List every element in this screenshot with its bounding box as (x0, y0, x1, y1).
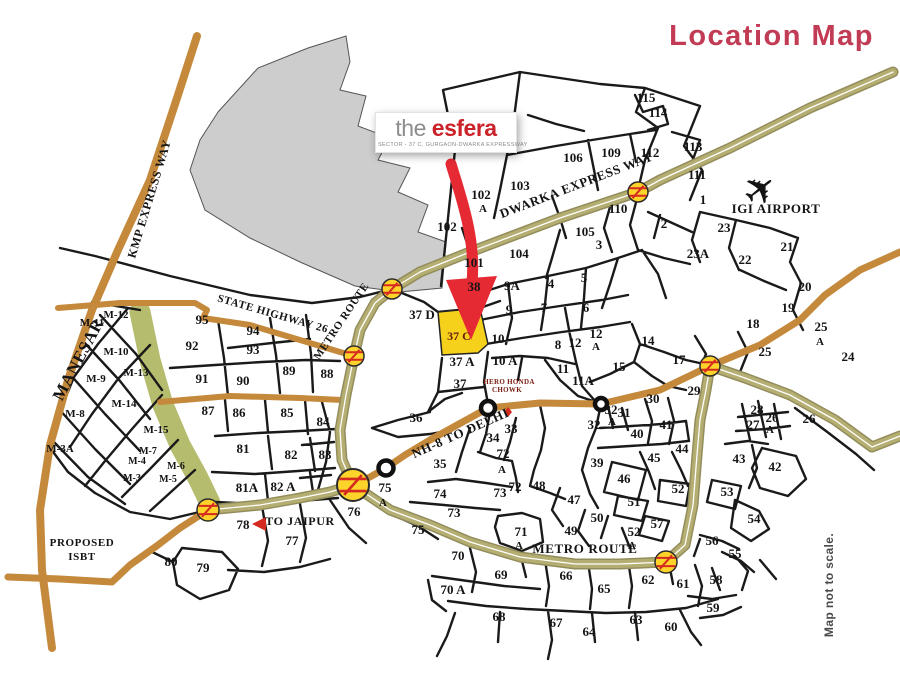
sector-label: 74 (434, 486, 448, 501)
sector-label: 38 (468, 279, 482, 294)
sector-label: 59 (707, 600, 721, 615)
sector-label: A (515, 540, 523, 552)
sector-label: 18 (747, 316, 761, 331)
sector-label: 101 (464, 255, 484, 270)
sector-label: 114 (649, 105, 668, 120)
sector-label: 89 (283, 363, 297, 378)
sector-label: 111 (688, 167, 706, 182)
sector-label: 82 A (271, 479, 297, 494)
sector-label: 51 (628, 494, 641, 509)
chowk-label: HERO HONDA (483, 378, 534, 386)
location-map-canvas: ✈ KMP EXPRESS WAYDWARKA EXPRESS WAYSTATE… (0, 0, 900, 700)
sector-label: 37 A (450, 354, 476, 369)
sector-label: 64 (583, 624, 597, 639)
sector-label: 11A (572, 373, 594, 388)
logo-the: the (395, 115, 425, 141)
sector-label: M-8 (65, 408, 85, 420)
sector-label: 86 (233, 405, 247, 420)
sector-label: 43 (733, 451, 747, 466)
sector-label: 26 (803, 411, 817, 426)
sector-label: 90 (237, 373, 250, 388)
sector-label: 45 (648, 450, 662, 465)
toll-plaza-icon (337, 469, 369, 501)
sector-label: 31 (618, 405, 631, 420)
metro-station-icon (197, 499, 219, 521)
sector-label: 94 (247, 323, 261, 338)
sector-label: 112 (641, 145, 660, 160)
sector-label: 57 (651, 516, 665, 531)
sector-label: M-3 (123, 473, 141, 484)
sector-label: 61 (677, 576, 690, 591)
sector-label: 53 (721, 484, 735, 499)
sector-label: 8 (555, 337, 562, 352)
sector-label: A (592, 341, 600, 353)
sector-label: 92 (186, 338, 199, 353)
sector-label: 2 (661, 216, 668, 231)
sector-label: 9A (504, 278, 521, 293)
esfera-logo: the esfera SECTOR - 37 C, GURGAON-DWARKA… (375, 112, 517, 153)
sector-label: 87 (202, 403, 216, 418)
sector-label: 62 (642, 572, 655, 587)
road-label: PROPOSED (50, 537, 115, 549)
sector-label: 4 (548, 276, 555, 291)
sector-label: 48 (533, 478, 547, 493)
sector-label: 54 (748, 511, 762, 526)
sector-label: 46 (618, 471, 632, 486)
sector-label: 113 (684, 139, 703, 154)
sector-label: 55 (729, 546, 743, 561)
sector-label: 88 (321, 366, 335, 381)
sector-label: 56 (706, 533, 720, 548)
sector-label: 106 (563, 150, 583, 165)
sector-label: 37 D (409, 307, 435, 322)
sector-label: M-14 (111, 398, 137, 410)
sector-label: 79 (197, 560, 211, 575)
logo-brand: esfera (432, 115, 497, 141)
sector-label: 77 (286, 533, 300, 548)
sector-label: 15 (613, 359, 627, 374)
sector-label: 47 (568, 492, 582, 507)
sector-label: 75 (379, 480, 393, 495)
sector-label: 102 (437, 219, 457, 234)
sector-label: 34 (487, 430, 501, 445)
sector-label: 81 (237, 441, 250, 456)
sector-label: 72 (509, 479, 522, 494)
road-label: METRO ROUTE (532, 541, 637, 556)
sector-label: 32 (605, 402, 618, 417)
sector-label: A (766, 424, 774, 436)
sector-label: A (816, 336, 824, 348)
sector-label: 102 (471, 187, 491, 202)
sector-label: 21 (781, 239, 794, 254)
sector-label: 70 (452, 548, 465, 563)
logo-subtitle: SECTOR - 37 C, GURGAON-DWARKA EXPRESSWAY (378, 142, 514, 148)
sector-label: 109 (601, 145, 621, 160)
sector-label: 66 (560, 568, 574, 583)
sector-label: 12 (569, 335, 582, 350)
sector-label: 10 A (493, 353, 519, 368)
sector-label: 30 (647, 391, 660, 406)
road-label: IGI AIRPORT (732, 201, 821, 216)
sector-label: 28 (751, 402, 765, 417)
sector-label: 75 (412, 522, 426, 537)
sector-label: 1 (700, 192, 707, 207)
sector-label: 42 (769, 459, 782, 474)
sector-label: 29 (688, 383, 702, 398)
sector-label: 41 (660, 417, 673, 432)
sector-label: 93 (247, 342, 261, 357)
sector-label: 71 (515, 524, 528, 539)
sector-label: 27 (747, 417, 761, 432)
sector-label: 19 (782, 300, 796, 315)
sector-label: 104 (509, 246, 529, 261)
sector-label: 80 (165, 554, 178, 569)
sector-label: M-4 (128, 456, 146, 467)
sector-label: 22 (739, 252, 752, 267)
road-label: KMP EXPRESS WAY (124, 138, 173, 260)
sector-label: 72 (497, 446, 510, 461)
sector-label: 69 (495, 567, 509, 582)
metro-station-icon (628, 182, 648, 202)
sector-label: M-3A (46, 443, 74, 455)
sector-label: 67 (550, 615, 564, 630)
metro-station-icon (382, 279, 402, 299)
sector-label: 6 (583, 300, 590, 315)
sector-label: M-13 (123, 367, 149, 379)
sector-label: 70 A (441, 582, 467, 597)
sector-label: A (379, 497, 387, 509)
metro-station-icon (700, 356, 720, 376)
sector-label: 63 (630, 612, 644, 627)
scale-note: Map not to scale. (822, 533, 836, 637)
sector-label: 103 (510, 178, 530, 193)
sector-label: 52 (672, 481, 685, 496)
metro-station-icon (344, 346, 364, 366)
sector-label: M-5 (159, 474, 177, 485)
sector-label: 78 (237, 517, 251, 532)
sector-label: 84 (317, 414, 331, 429)
metro-station-icon (655, 551, 677, 573)
sector-label: 83 (319, 447, 333, 462)
sector-label: 39 (591, 455, 605, 470)
road-label: ISBT (68, 551, 96, 563)
sector-label: 105 (575, 224, 595, 239)
junction-icon (379, 461, 394, 476)
sector-label: 17 (673, 352, 687, 367)
sector-label: 44 (676, 441, 690, 456)
sector-label: 68 (493, 609, 507, 624)
sector-label: 65 (598, 581, 612, 596)
sector-label: 50 (591, 510, 604, 525)
sector-label: 49 (565, 523, 579, 538)
sector-label: A (628, 540, 636, 552)
sector-label: 10 (492, 331, 505, 346)
sector-label: M-11 (80, 317, 104, 329)
sector-label: 23 (718, 220, 732, 235)
sector-label: 110 (609, 201, 628, 216)
sector-label: 81A (236, 480, 259, 495)
sector-label: 60 (665, 619, 678, 634)
sector-label: M-6 (167, 461, 185, 472)
sector-label: 35 (434, 456, 448, 471)
sector-label: A (479, 203, 487, 215)
sector-label: 40 (631, 426, 644, 441)
gray-area (190, 36, 446, 292)
sector-label: 26 (766, 410, 780, 425)
sector-label: 9 (506, 302, 513, 317)
sector-label: M-12 (103, 309, 129, 321)
jaipur-direction-icon (252, 517, 266, 531)
page-title: Location Map (669, 20, 874, 53)
sector-label: 25 (815, 319, 829, 334)
sector-label: 5 (581, 270, 588, 285)
sector-label: 73 (448, 505, 462, 520)
sector-label: 3 (596, 237, 603, 252)
sector-label: 20 (799, 279, 812, 294)
sector-label: 52 (628, 524, 641, 539)
sector-label: A (498, 464, 506, 476)
sector-label: M-9 (86, 373, 106, 385)
sector-label: 95 (196, 312, 210, 327)
sector-label: 85 (281, 405, 295, 420)
sector-label: 33 (505, 421, 519, 436)
sector-label: 24 (842, 349, 856, 364)
sector-label: 91 (196, 371, 209, 386)
sector-label: 12 (590, 326, 603, 341)
sector-label: 14 (642, 333, 656, 348)
sector-label: 36 (410, 410, 424, 425)
sector-label: M-15 (143, 424, 169, 436)
sector-label: 32 (588, 417, 601, 432)
road-label: TO JAIPUR (265, 514, 335, 528)
sector-label: A (608, 416, 616, 428)
chowk-label: CHOWK (492, 386, 522, 394)
sector-label: 11 (557, 361, 569, 376)
highlight-label: 37 C (447, 329, 471, 343)
sector-label: 7 (541, 300, 548, 315)
sector-label: 58 (710, 572, 724, 587)
sector-label: 76 (348, 504, 362, 519)
sector-label: 25 (759, 344, 773, 359)
sector-label: 73 (494, 485, 508, 500)
sector-label: 82 (285, 447, 298, 462)
sector-label: M-10 (103, 346, 129, 358)
sector-label: 23A (687, 246, 710, 261)
sector-label: 115 (637, 90, 656, 105)
sector-link-road (160, 396, 342, 402)
sector-label: 37 (454, 376, 468, 391)
